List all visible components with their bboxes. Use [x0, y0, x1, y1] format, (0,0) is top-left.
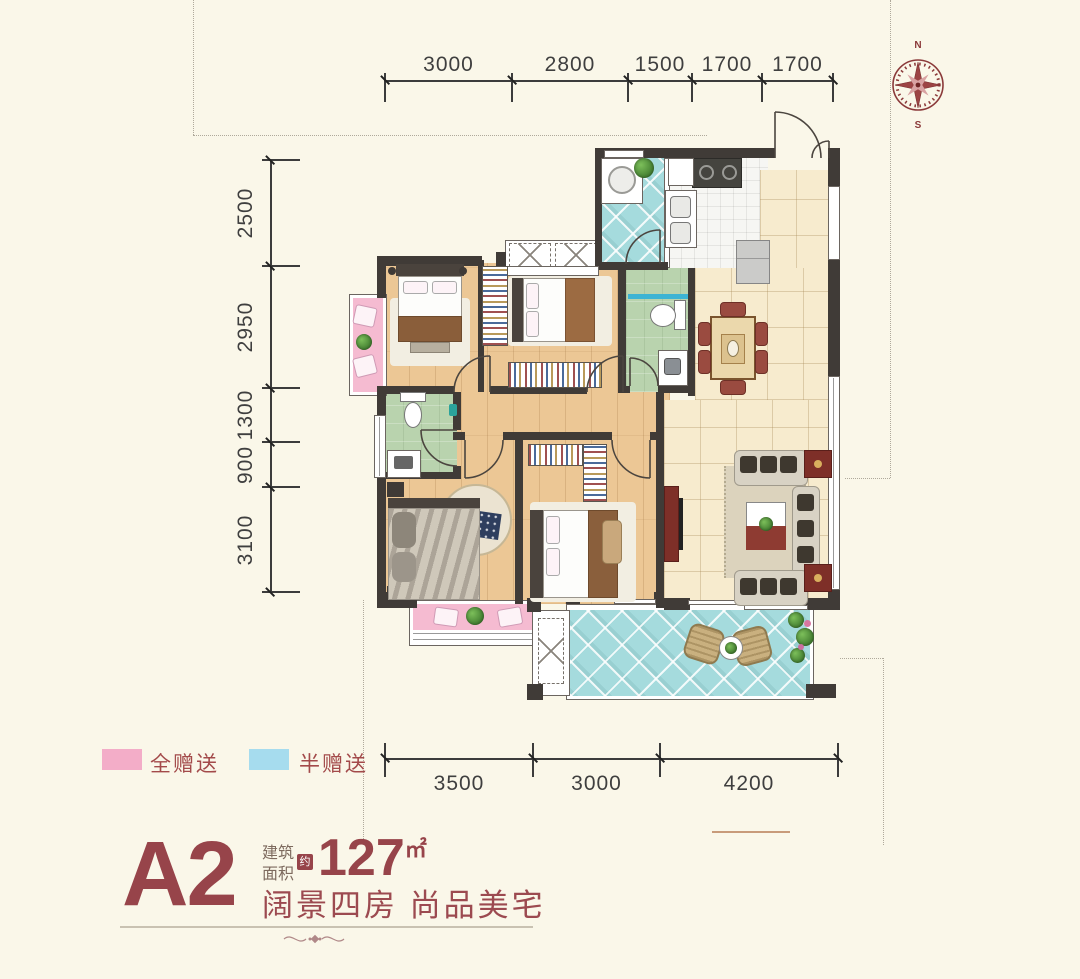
sofa-cushion: [740, 456, 757, 473]
sofa-cushion: [797, 546, 814, 563]
window-entry: [828, 186, 840, 260]
floor-entry: [760, 170, 838, 272]
bed-blanket: [565, 278, 595, 342]
bed-pillow: [526, 283, 539, 309]
wall: [523, 432, 612, 440]
wall: [503, 432, 523, 440]
kitchen-counter: [668, 158, 694, 186]
wall: [806, 684, 836, 698]
shower-head: [449, 404, 457, 416]
legend-label-full-gift: 全赠送: [150, 748, 219, 778]
wall: [595, 262, 668, 270]
wall: [377, 256, 386, 298]
wall: [618, 386, 630, 393]
balcony-flower-pink: [798, 644, 804, 650]
wall: [377, 478, 386, 592]
bed-blanket: [398, 316, 462, 342]
side-table-decor: [814, 460, 822, 468]
bed-pillow: [403, 281, 428, 294]
toilet-tank: [400, 392, 426, 402]
bed-headboard: [530, 510, 543, 598]
tagline: 阔景四房 尚品美宅: [262, 880, 546, 925]
balcony-pillow: [352, 304, 378, 328]
fridge-divider: [737, 258, 769, 259]
sofa-cushion: [780, 578, 797, 595]
bed-pillow: [526, 311, 539, 337]
bed-headboard: [396, 264, 464, 276]
wall: [664, 598, 690, 610]
dining-chair: [720, 380, 746, 395]
nightstand: [387, 482, 404, 497]
area-label-line1: 建筑: [262, 844, 294, 865]
floorplan-page: N S 300028001500170017003500300042002500…: [0, 0, 1080, 979]
dining-chair: [755, 350, 768, 374]
wall: [453, 466, 461, 479]
dining-chair: [755, 322, 768, 346]
nightstand: [388, 267, 396, 275]
sofa-cushion: [760, 578, 777, 595]
flourish-ornament: [282, 930, 346, 948]
balcony-flower-pink: [804, 620, 811, 627]
title-underline: [120, 926, 533, 928]
balcony-plant: [466, 607, 484, 625]
tv-screen: [679, 498, 683, 550]
stove-burner: [699, 165, 714, 180]
bed-pillow: [546, 548, 560, 576]
dining-chair: [698, 322, 711, 346]
toilet-bowl: [404, 402, 422, 428]
balcony-flowers: [788, 612, 804, 628]
table-plate: [727, 340, 739, 357]
window-sill-line: [413, 633, 532, 634]
bed-pillow: [546, 516, 560, 544]
balcony-table-plant: [725, 642, 737, 654]
balcony-flowers: [790, 648, 805, 663]
area-number: 127: [318, 829, 405, 887]
balcony-pillow: [433, 606, 459, 627]
window-sill-line: [413, 639, 532, 640]
bed-pillow: [432, 281, 457, 294]
bed-bench: [410, 342, 450, 353]
window-bedroom2: [503, 266, 599, 276]
sink-basin: [670, 222, 691, 244]
wall: [828, 258, 840, 378]
ac-unit-hatch: [555, 243, 597, 267]
bed-cushion: [602, 520, 622, 564]
wall: [688, 268, 695, 396]
bed-pillow: [392, 552, 416, 582]
legend-label-half-gift: 半赠送: [299, 748, 368, 778]
fridge: [736, 240, 770, 284]
window-laundry: [604, 150, 644, 158]
shower-glass: [628, 294, 688, 299]
nightstand: [459, 267, 467, 275]
bed-pillow: [392, 512, 416, 548]
wall: [515, 440, 523, 604]
balcony-plant: [356, 334, 372, 350]
wardrobe: [583, 444, 607, 502]
wall: [828, 148, 840, 158]
legend-swatch-half-gift: [249, 749, 289, 770]
plant-kitchen: [634, 158, 654, 178]
wardrobe: [482, 266, 508, 346]
window-mullion: [379, 417, 380, 476]
wardrobe: [528, 444, 583, 466]
wall: [527, 684, 543, 700]
sofa-cushion: [797, 494, 814, 511]
balcony-flowers: [796, 628, 814, 646]
wall: [618, 268, 626, 392]
dining-chair: [720, 302, 746, 317]
sofa-cushion: [780, 456, 797, 473]
ac-unit-hatch: [509, 243, 551, 267]
plant-coffee-table: [759, 517, 773, 531]
window-mullion: [833, 378, 834, 588]
side-table-decor: [814, 574, 822, 582]
area-unit: ㎡: [405, 837, 427, 862]
wall: [453, 432, 465, 440]
unit-title-block: A2 建筑 面积 约 127㎡ 阔景四房 尚品美宅: [110, 828, 570, 958]
washer-drum: [608, 166, 636, 194]
bed-headboard: [388, 498, 480, 508]
legend-swatch-full-gift: [102, 749, 142, 770]
bed-headboard: [512, 278, 523, 342]
area-approx-badge: 约: [297, 854, 313, 870]
toilet-bowl: [650, 304, 676, 327]
window-living: [828, 376, 840, 590]
legend: 全赠送 半赠送: [100, 746, 380, 776]
sofa-cushion: [760, 456, 777, 473]
wall: [828, 158, 840, 188]
tv-cabinet: [664, 486, 679, 562]
area-value: 127㎡: [318, 832, 427, 884]
sofa-cushion: [740, 578, 757, 595]
dining-chair: [698, 350, 711, 374]
ac-unit-hatch: [538, 618, 564, 684]
window-bath-master: [374, 415, 386, 478]
unit-name: A2: [122, 828, 236, 920]
vanity-basin: [664, 358, 681, 375]
accent-line: [712, 831, 790, 833]
stove-burner: [722, 165, 737, 180]
vanity-basin: [394, 456, 413, 469]
wall: [656, 392, 664, 608]
sink-basin: [670, 196, 691, 218]
sofa-cushion: [797, 520, 814, 537]
wall: [377, 392, 386, 415]
bookshelf: [508, 362, 602, 388]
